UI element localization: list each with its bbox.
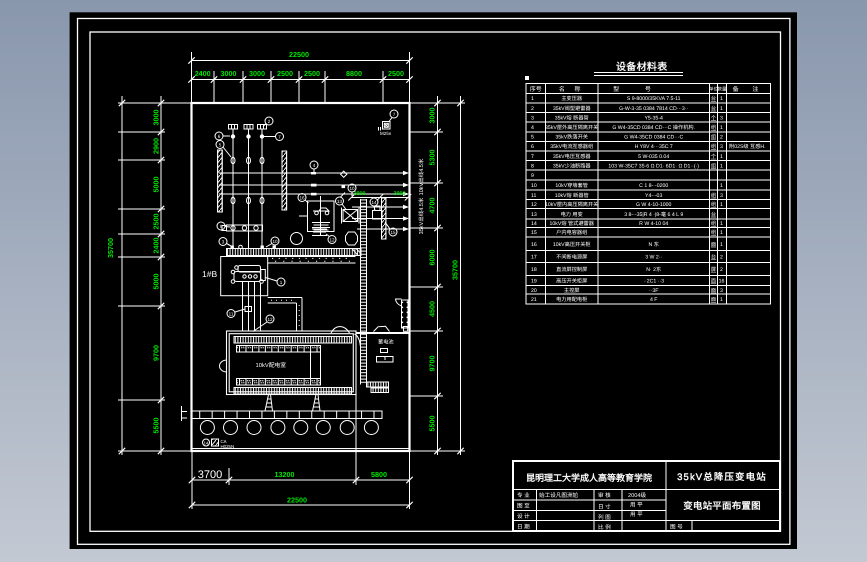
svg-text:1: 1 <box>720 230 723 236</box>
svg-text:5300: 5300 <box>428 150 437 166</box>
svg-text:10kV出线4.5米: 10kV出线4.5米 <box>418 158 425 195</box>
svg-text:9700: 9700 <box>152 345 161 361</box>
svg-text:35kV阀型避雷器: 35kV阀型避雷器 <box>553 105 592 112</box>
svg-text:20: 20 <box>531 288 537 294</box>
svg-text:蓄电池: 蓄电池 <box>378 339 394 346</box>
svg-text:4 F: 4 F <box>650 297 658 303</box>
svg-text:35700: 35700 <box>106 238 115 258</box>
svg-text:用 平: 用 平 <box>630 502 643 509</box>
svg-text:21: 21 <box>531 297 537 303</box>
svg-text:台: 台 <box>711 105 716 112</box>
svg-text:备 注: 备 注 <box>733 85 765 93</box>
svg-text:1: 1 <box>720 202 723 208</box>
svg-text:个: 个 <box>711 114 717 121</box>
svg-text:5: 5 <box>219 143 222 148</box>
svg-text:1: 1 <box>720 163 723 169</box>
svg-text:组: 组 <box>711 229 716 236</box>
svg-text:R W 4-10 04: R W 4-10 04 <box>639 221 668 227</box>
svg-text:35kV电流互感器组: 35kV电流互感器组 <box>550 143 593 150</box>
svg-text:2400: 2400 <box>152 238 161 254</box>
svg-text:14: 14 <box>204 441 209 446</box>
svg-text:11: 11 <box>229 312 234 317</box>
svg-text:4: 4 <box>531 125 534 131</box>
svg-text:2: 2 <box>268 119 271 124</box>
svg-text:13: 13 <box>531 212 537 218</box>
svg-text:3 W 2··: 3 W 2·· <box>645 255 662 261</box>
svg-text:2900: 2900 <box>152 138 161 154</box>
svg-text:3000: 3000 <box>249 69 265 78</box>
svg-text:5500: 5500 <box>152 418 161 434</box>
svg-text:10kV熔 管式避雷器: 10kV熔 管式避雷器 <box>550 220 595 227</box>
svg-text:2500: 2500 <box>304 69 320 78</box>
svg-text:3: 3 <box>720 144 723 150</box>
svg-text:8: 8 <box>531 163 534 169</box>
svg-text:10kV熔 断器管: 10kV熔 断器管 <box>555 192 589 199</box>
svg-text:图 至: 图 至 <box>517 503 530 510</box>
svg-text:台: 台 <box>711 95 716 102</box>
svg-text:3000: 3000 <box>152 110 161 126</box>
svg-text:设备材料表: 设备材料表 <box>616 61 668 73</box>
svg-text:1: 1 <box>720 242 723 248</box>
svg-text:··3F: ··3F <box>649 288 659 294</box>
svg-text:用 平: 用 平 <box>630 511 643 518</box>
svg-text:审 核: 审 核 <box>598 492 611 499</box>
svg-text:3: 3 <box>720 193 723 199</box>
svg-text:22500: 22500 <box>289 50 309 59</box>
svg-text:7: 7 <box>531 154 534 160</box>
svg-text:1: 1 <box>720 154 723 160</box>
svg-text:13200: 13200 <box>275 470 295 479</box>
svg-text:4700: 4700 <box>428 198 437 214</box>
svg-text:16: 16 <box>299 196 305 201</box>
svg-text:变电站平面布置图: 变电站平面布置图 <box>683 500 761 512</box>
svg-text:6000: 6000 <box>428 250 437 266</box>
svg-text:2500: 2500 <box>152 214 161 230</box>
svg-text:103 W-35C7 35·6 Ω D1· 6D1· Ω D: 103 W-35C7 35·6 Ω D1· 6D1· Ω D1··(·) <box>608 163 699 169</box>
svg-text:高压开关柜屏: 高压开关柜屏 <box>556 278 587 285</box>
svg-text:H025N: H025N <box>221 444 235 449</box>
svg-text:3: 3 <box>531 115 534 121</box>
svg-text:G W4-35CD 0384 CD···C 操作机构.: G W4-35CD 0384 CD···C 操作机构. <box>612 124 695 131</box>
svg-text:序号: 序号 <box>530 85 542 93</box>
svg-text:昆明理工大学成人高等教育学院: 昆明理工大学成人高等教育学院 <box>526 473 652 483</box>
svg-text:6: 6 <box>531 144 534 150</box>
svg-text:14: 14 <box>371 200 377 205</box>
svg-text:16: 16 <box>531 242 537 248</box>
svg-text:1: 1 <box>531 96 534 102</box>
svg-text:2: 2 <box>720 267 723 273</box>
svg-text:Y5-35-4: Y5-35-4 <box>644 115 663 121</box>
svg-text:10: 10 <box>349 186 355 191</box>
svg-text:个: 个 <box>711 153 717 160</box>
svg-text:面: 面 <box>711 278 716 285</box>
svg-text:C 1 8-·-0200: C 1 8-·-0200 <box>639 183 668 189</box>
svg-text:5000: 5000 <box>152 274 161 290</box>
svg-text:5000: 5000 <box>152 177 161 193</box>
svg-text:10kV高压开关柜: 10kV高压开关柜 <box>553 241 591 248</box>
svg-text:12: 12 <box>267 317 273 322</box>
svg-text:9: 9 <box>531 173 534 179</box>
svg-text:17: 17 <box>531 255 537 261</box>
svg-text:5 W-035 0.04: 5 W-035 0.04 <box>638 154 669 160</box>
svg-text:组: 组 <box>711 134 716 141</box>
svg-text:1: 1 <box>280 280 283 285</box>
svg-text:不间断电源屏: 不间断电源屏 <box>556 254 587 261</box>
svg-text:N 东: N 东 <box>649 241 659 248</box>
svg-text:组: 组 <box>711 124 716 131</box>
svg-text:35kV出线4.5米: 35kV出线4.5米 <box>418 197 425 234</box>
svg-text:N· 2东: N· 2东 <box>646 266 661 273</box>
svg-text:10kV配电室: 10kV配电室 <box>256 362 287 369</box>
svg-text:18: 18 <box>531 267 537 273</box>
svg-text:1: 1 <box>720 106 723 112</box>
svg-text:10: 10 <box>531 183 537 189</box>
svg-text:2: 2 <box>720 135 723 141</box>
svg-text:4500: 4500 <box>428 301 437 317</box>
svg-text:13: 13 <box>337 199 343 204</box>
svg-text:屏: 屏 <box>711 266 716 273</box>
svg-text:7: 7 <box>393 112 396 117</box>
svg-text:图 号: 图 号 <box>670 524 683 531</box>
svg-text:主变压器: 主变压器 <box>561 95 583 102</box>
svg-text:3700: 3700 <box>198 469 222 481</box>
svg-text:组: 组 <box>711 162 716 169</box>
svg-text:台: 台 <box>711 254 716 261</box>
svg-text:型 号: 型 号 <box>613 86 663 93</box>
svg-text:1#B: 1#B <box>202 269 217 279</box>
svg-text:2400: 2400 <box>195 69 211 78</box>
svg-text:组: 组 <box>711 192 716 199</box>
svg-text:H Y8V 4···35C 7: H Y8V 4···35C 7 <box>635 144 673 150</box>
svg-text:设 计: 设 计 <box>517 513 530 520</box>
svg-text:1: 1 <box>720 221 723 227</box>
svg-text:5500: 5500 <box>428 416 437 432</box>
svg-text:1: 1 <box>720 125 723 131</box>
svg-text:数量: 数量 <box>717 87 727 92</box>
svg-text:面: 面 <box>711 241 716 248</box>
svg-text:3000: 3000 <box>428 108 437 124</box>
svg-text:35kV总降压变电站: 35kV总降压变电站 <box>677 471 767 483</box>
svg-text:台: 台 <box>711 211 716 218</box>
svg-text:2500: 2500 <box>388 69 404 78</box>
svg-text:11: 11 <box>531 193 536 199</box>
svg-text:1: 1 <box>720 297 723 303</box>
svg-text:1: 1 <box>720 183 723 189</box>
svg-text:9: 9 <box>220 224 223 229</box>
svg-text:名 称: 名 称 <box>559 85 585 93</box>
svg-text:2004级: 2004级 <box>628 492 646 499</box>
svg-text:19: 19 <box>531 279 537 285</box>
svg-text:主控屏: 主控屏 <box>564 287 580 294</box>
svg-text:4: 4 <box>313 163 316 168</box>
svg-text:3: 3 <box>720 115 723 121</box>
svg-text:附02S级 互感H.: 附02S级 互感H. <box>729 143 766 150</box>
svg-text:3: 3 <box>720 288 723 294</box>
svg-text:35700: 35700 <box>451 260 460 280</box>
svg-text:面: 面 <box>711 287 716 294</box>
svg-text:组: 组 <box>711 220 716 227</box>
svg-text:3 8-·-35|R 4 ·|8-毫 6 4 L 9: 3 8-·-35|R 4 ·|8-毫 6 4 L 9 <box>624 211 683 218</box>
svg-text:G W4-35CD 0384 CD···C: G W4-35CD 0384 CD···C <box>624 135 683 141</box>
svg-text:专 业: 专 业 <box>517 492 530 499</box>
svg-text:10kV屋内高压隔离开关: 10kV屋内高压隔离开关 <box>545 201 598 208</box>
svg-text:列 图: 列 图 <box>598 514 611 521</box>
svg-text:16: 16 <box>719 279 725 285</box>
svg-text:35kV少油断路器: 35kV少油断路器 <box>553 162 592 169</box>
svg-text:组: 组 <box>711 201 716 208</box>
svg-text:Y4-·-03: Y4-·-03 <box>645 193 662 199</box>
svg-text:35kV电压互感器: 35kV电压互感器 <box>553 153 592 160</box>
svg-text:6: 6 <box>218 134 221 139</box>
svg-text:35kV熔 断器管: 35kV熔 断器管 <box>555 114 589 121</box>
svg-text:S 9-8000/35KVA 7.5-11: S 9-8000/35KVA 7.5-11 <box>627 96 681 102</box>
svg-text:10: 10 <box>272 239 278 244</box>
svg-text:8800: 8800 <box>346 69 362 78</box>
svg-text:3000: 3000 <box>354 191 366 197</box>
svg-text:M25n: M25n <box>380 131 392 136</box>
svg-text:35kV跌落开关: 35kV跌落开关 <box>555 134 588 141</box>
svg-text:10kV穿墙套管: 10kV穿墙套管 <box>555 182 588 189</box>
svg-text:35kV屋外高压隔离开关: 35kV屋外高压隔离开关 <box>545 124 598 131</box>
svg-text:G W 4-10-1000: G W 4-10-1000 <box>636 202 672 208</box>
svg-text:户内电容器组: 户内电容器组 <box>556 229 587 236</box>
svg-text:1: 1 <box>720 96 723 102</box>
svg-text:2: 2 <box>720 255 723 261</box>
svg-text:3000: 3000 <box>221 69 237 78</box>
svg-text:始工设凡图洲尬: 始工设凡图洲尬 <box>539 492 579 499</box>
svg-text:2: 2 <box>531 106 534 112</box>
svg-text:··2C1 ··3: ··2C1 ··3 <box>643 279 664 285</box>
svg-text:15: 15 <box>390 230 396 235</box>
svg-text:比 例: 比 例 <box>598 524 611 531</box>
svg-text:面: 面 <box>711 296 716 303</box>
svg-text:9700: 9700 <box>428 356 437 372</box>
svg-text:5: 5 <box>531 135 534 141</box>
svg-text:22500: 22500 <box>287 496 307 505</box>
svg-text:15: 15 <box>531 230 537 236</box>
svg-text:电力用配电柜: 电力用配电柜 <box>556 296 587 303</box>
svg-text:3000: 3000 <box>394 191 406 197</box>
svg-text:日 期: 日 期 <box>517 524 530 531</box>
svg-text:7: 7 <box>278 135 281 140</box>
svg-text:日 寸: 日 寸 <box>598 504 611 511</box>
svg-text:G-W-3-35 0384 7814 CD···3··: G-W-3-35 0384 7814 CD···3·· <box>619 106 688 112</box>
svg-text:组: 组 <box>711 143 716 150</box>
svg-text:12: 12 <box>329 238 335 243</box>
svg-text:直流屏控制屏: 直流屏控制屏 <box>556 266 587 273</box>
svg-text:2500: 2500 <box>277 69 293 78</box>
svg-text:14: 14 <box>531 221 537 227</box>
svg-text:电力 用变: 电力 用变 <box>561 211 583 218</box>
svg-text:5800: 5800 <box>371 470 387 479</box>
svg-text:12: 12 <box>531 202 537 208</box>
svg-text:3: 3 <box>222 240 225 245</box>
